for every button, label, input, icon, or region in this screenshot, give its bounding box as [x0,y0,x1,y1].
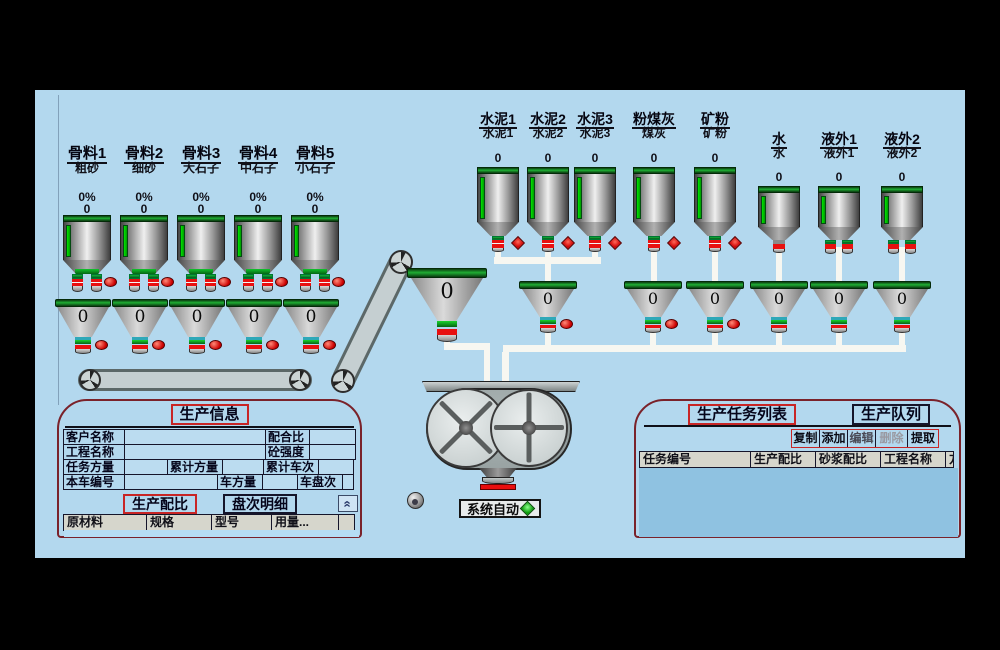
field-value-task-volume[interactable] [124,459,168,475]
liquid-silo-label: 水 水 [745,131,813,160]
delete-button[interactable]: 删除 [876,430,908,447]
col-header-mortar-mix[interactable]: 砂浆配比 [815,451,881,468]
mixer-discharge-bowl [482,477,514,484]
task-table-body[interactable] [639,468,958,537]
silo-material: 矿粉 [681,127,749,140]
silo-level-indicator [530,177,535,219]
discharge-indicator [332,277,345,287]
silo-material: 液外1 [805,147,873,160]
valve-indicator [608,236,622,250]
aggregate-silo-values: 0% 0 [228,191,288,215]
field-label-task-volume: 任务方量 [63,459,125,475]
mixer-hub [522,421,536,435]
edit-button[interactable]: 编辑 [848,430,876,447]
system-mode-indicator[interactable]: 系统自动 [459,499,541,518]
aggregate-silo [120,215,168,291]
hopper-value: 0 [169,307,225,327]
conveyor-pulley [331,369,355,393]
aggregate-silo-values: 0% 0 [285,191,345,215]
hmi-screenshot: 骨料1 粗砂 0% 0 骨料2 细砂 0% 0 骨料3 大石子 0% 0 [0,0,1000,650]
discharge-indicator [218,277,231,287]
mixer-hub [459,421,473,435]
silo-level-indicator [237,225,242,257]
pipe [651,249,657,283]
silo-level-indicator [480,177,485,219]
discharge-indicator [266,340,279,350]
mixer-discharge-gate [480,484,516,490]
weigh-hopper: 0 [519,281,577,331]
aggregate-silo-label: 骨料5 小石子 [285,146,345,175]
mixer-feed-pipe-right [502,352,509,383]
powder-manifold-pipe [503,345,906,352]
silo-cone [63,260,111,274]
weigh-hopper: 0 [750,281,808,331]
cement-merge-pipe [494,257,601,264]
col-header-spec[interactable]: 规格 [146,514,212,531]
tab-production-queue[interactable]: 生产队列 [852,404,930,425]
hopper-value: 0 [686,289,744,308]
col-header-task-no[interactable]: 任务编号 [639,451,751,468]
weigh-hopper: 0 [810,281,868,331]
aggregate-silo-label: 骨料2 细砂 [114,146,174,175]
field-label-truck-volume: 车方量 [217,474,263,490]
col-header-extra[interactable] [338,514,355,531]
silo-level-indicator [66,225,71,257]
silo-material: 水 [745,147,813,160]
silo-weight: 0 [171,203,231,215]
silo-material: 粗砂 [57,162,117,175]
silo-level-indicator [180,225,185,257]
horizontal-conveyor-belt [78,369,312,391]
hopper-value: 0 [112,307,168,327]
field-value-total-volume[interactable] [222,459,264,475]
extract-button[interactable]: 提取 [908,430,938,447]
liquid-silo-label: 液外2 液外2 [868,131,936,160]
twin-shaft-mixer [420,380,580,492]
silo-material: 细砂 [114,162,174,175]
aggregate-silo [63,215,111,291]
aggregate-weigh-hopper: 0 [226,299,282,356]
powder-silo [633,167,675,253]
aggregate-weigh-hopper: 0 [283,299,339,356]
silo-weight: 0 [228,203,288,215]
task-toolbar: 复制 添加 编辑 删除 提取 [791,429,939,448]
silo-weight: 0 [634,152,674,164]
field-value-truck-volume[interactable] [262,474,298,490]
weigh-hopper: 0 [624,281,682,331]
field-label-mix-ratio: 配合比 [265,429,310,445]
conveyor-pulley [289,369,311,391]
aggregate-silo-values: 0% 0 [114,191,174,215]
col-header-material[interactable]: 原材料 [63,514,147,531]
silo-level-indicator [294,225,299,257]
silo-level-indicator [697,177,702,219]
valve-indicator [728,236,742,250]
powder-silo-label: 矿粉 矿粉 [681,111,749,140]
silo-outlet [91,274,102,292]
silo-cap [63,215,111,222]
silo-material: 水泥3 [561,127,629,140]
transfer-hopper: 0 [407,268,487,345]
hopper-value: 0 [283,307,339,327]
hopper-value: 0 [226,307,282,327]
batching-plant-screen: 骨料1 粗砂 0% 0 骨料2 细砂 0% 0 骨料3 大石子 0% 0 [35,90,965,558]
pump-icon [407,492,424,509]
field-value-batch-no[interactable] [342,474,354,490]
pipe [712,249,718,283]
silo-weight: 0 [528,152,568,164]
field-value-truck-no[interactable] [124,474,218,490]
silo-material: 中石子 [228,162,288,175]
discharge-indicator [152,340,165,350]
field-label-batch-no: 车盘次 [297,474,343,490]
silo-weight: 0 [695,152,735,164]
field-label-project: 工程名称 [63,444,125,460]
tab-task-list[interactable]: 生产任务列表 [688,404,796,425]
aggregate-silo [291,215,339,291]
mix-table-body[interactable] [64,530,359,537]
powder-silo-label: 水泥3 水泥3 [561,111,629,140]
production-info-panel: 生产信息 客户名称 配合比 工程名称 砼强度 任务方量 累计方量 累计车次 本车… [57,399,362,538]
valve-indicator [561,236,575,250]
field-value-mix-ratio[interactable] [309,429,356,445]
divider [644,425,951,427]
col-header-clipped[interactable]: 方 [945,451,954,468]
silo-weight: 0 [759,171,799,183]
aggregate-silo [234,215,282,291]
col-header-model[interactable]: 型号 [211,514,272,531]
liquid-silo [881,186,923,254]
valve-indicator [667,236,681,250]
silo-weight: 0 [478,152,518,164]
aggregate-weigh-hopper: 0 [112,299,168,356]
collapse-button[interactable]: « [338,495,358,512]
hopper-value: 0 [519,289,577,308]
weigh-hopper: 0 [686,281,744,331]
task-list-panel: 生产任务列表 生产队列 复制 添加 编辑 删除 提取 任务编号 生产配比 砂浆配… [634,399,961,538]
copy-button[interactable]: 复制 [792,430,820,447]
discharge-indicator [95,340,108,350]
hopper-value: 0 [55,307,111,327]
mixer-feed-pipe-left [484,350,490,383]
tab-production-mix[interactable]: 生产配比 [123,494,197,514]
silo-level-indicator [761,196,766,224]
silo-material: 液外2 [868,147,936,160]
col-header-amount[interactable]: 用量... [271,514,339,531]
info-panel-title: 生产信息 [170,404,248,425]
liquid-silo-label: 液外1 液外1 [805,131,873,160]
powder-silo [477,167,519,253]
discharge-indicator [727,319,740,329]
discharge-indicator [104,277,117,287]
discharge-indicator [665,319,678,329]
powder-silo [527,167,569,253]
silo-level-indicator [821,196,826,224]
hopper-value: 0 [810,289,868,308]
double-chevron-icon: « [343,500,353,507]
col-header-project[interactable]: 工程名称 [880,451,946,468]
divider [65,426,354,428]
powder-silo [694,167,736,253]
liquid-silo [758,186,800,254]
aggregate-silo-values: 0% 0 [57,191,117,215]
aggregate-weigh-hopper: 0 [169,299,225,356]
silo-material: 煤灰 [620,127,688,140]
aggregate-silo-label: 骨料3 大石子 [171,146,231,175]
tab-batch-detail[interactable]: 盘次明细 [223,494,297,514]
aggregate-weigh-hopper: 0 [55,299,111,356]
system-mode-label: 系统自动 [467,499,519,518]
field-label-total-trucks: 累计车次 [263,459,319,475]
valve-indicator [511,236,525,250]
field-label-truck-no: 本车编号 [63,474,125,490]
silo-weight: 0 [819,171,859,183]
silo-level-indicator [123,225,128,257]
field-value-project[interactable] [124,444,266,460]
powder-silo-label: 粉煤灰 煤灰 [620,111,688,140]
field-value-customer[interactable] [124,429,266,445]
silo-material: 大石子 [171,162,231,175]
conveyor-pulley [79,369,101,391]
discharge-indicator [161,277,174,287]
field-label-customer: 客户名称 [63,429,125,445]
discharge-indicator [560,319,573,329]
field-value-strength[interactable] [309,444,356,460]
weigh-hopper: 0 [873,281,931,331]
silo-weight: 0 [57,203,117,215]
silo-outlet [72,274,83,292]
field-label-strength: 砼强度 [265,444,310,460]
field-value-total-trucks[interactable] [318,459,354,475]
auto-mode-icon [520,501,536,517]
silo-weight: 0 [114,203,174,215]
hopper-value: 0 [750,289,808,308]
discharge-indicator [275,277,288,287]
aggregate-silo [177,215,225,291]
add-button[interactable]: 添加 [820,430,848,447]
hopper-value: 0 [407,279,487,303]
powder-silo [574,167,616,253]
silo-material: 小石子 [285,162,345,175]
discharge-indicator [323,340,336,350]
silo-weight: 0 [285,203,345,215]
hopper-value: 0 [873,289,931,308]
discharge-indicator [209,340,222,350]
silo-level-indicator [884,196,889,224]
field-label-total-volume: 累计方量 [167,459,223,475]
aggregate-silo-label: 骨料1 粗砂 [57,146,117,175]
silo-weight: 0 [575,152,615,164]
left-divider-line [58,95,59,405]
aggregate-silo-label: 骨料4 中石子 [228,146,288,175]
liquid-silo [818,186,860,254]
col-header-mix[interactable]: 生产配比 [750,451,816,468]
silo-weight: 0 [882,171,922,183]
silo-level-indicator [577,177,582,219]
silo-level-indicator [636,177,641,219]
aggregate-silo-values: 0% 0 [171,191,231,215]
hopper-value: 0 [624,289,682,308]
